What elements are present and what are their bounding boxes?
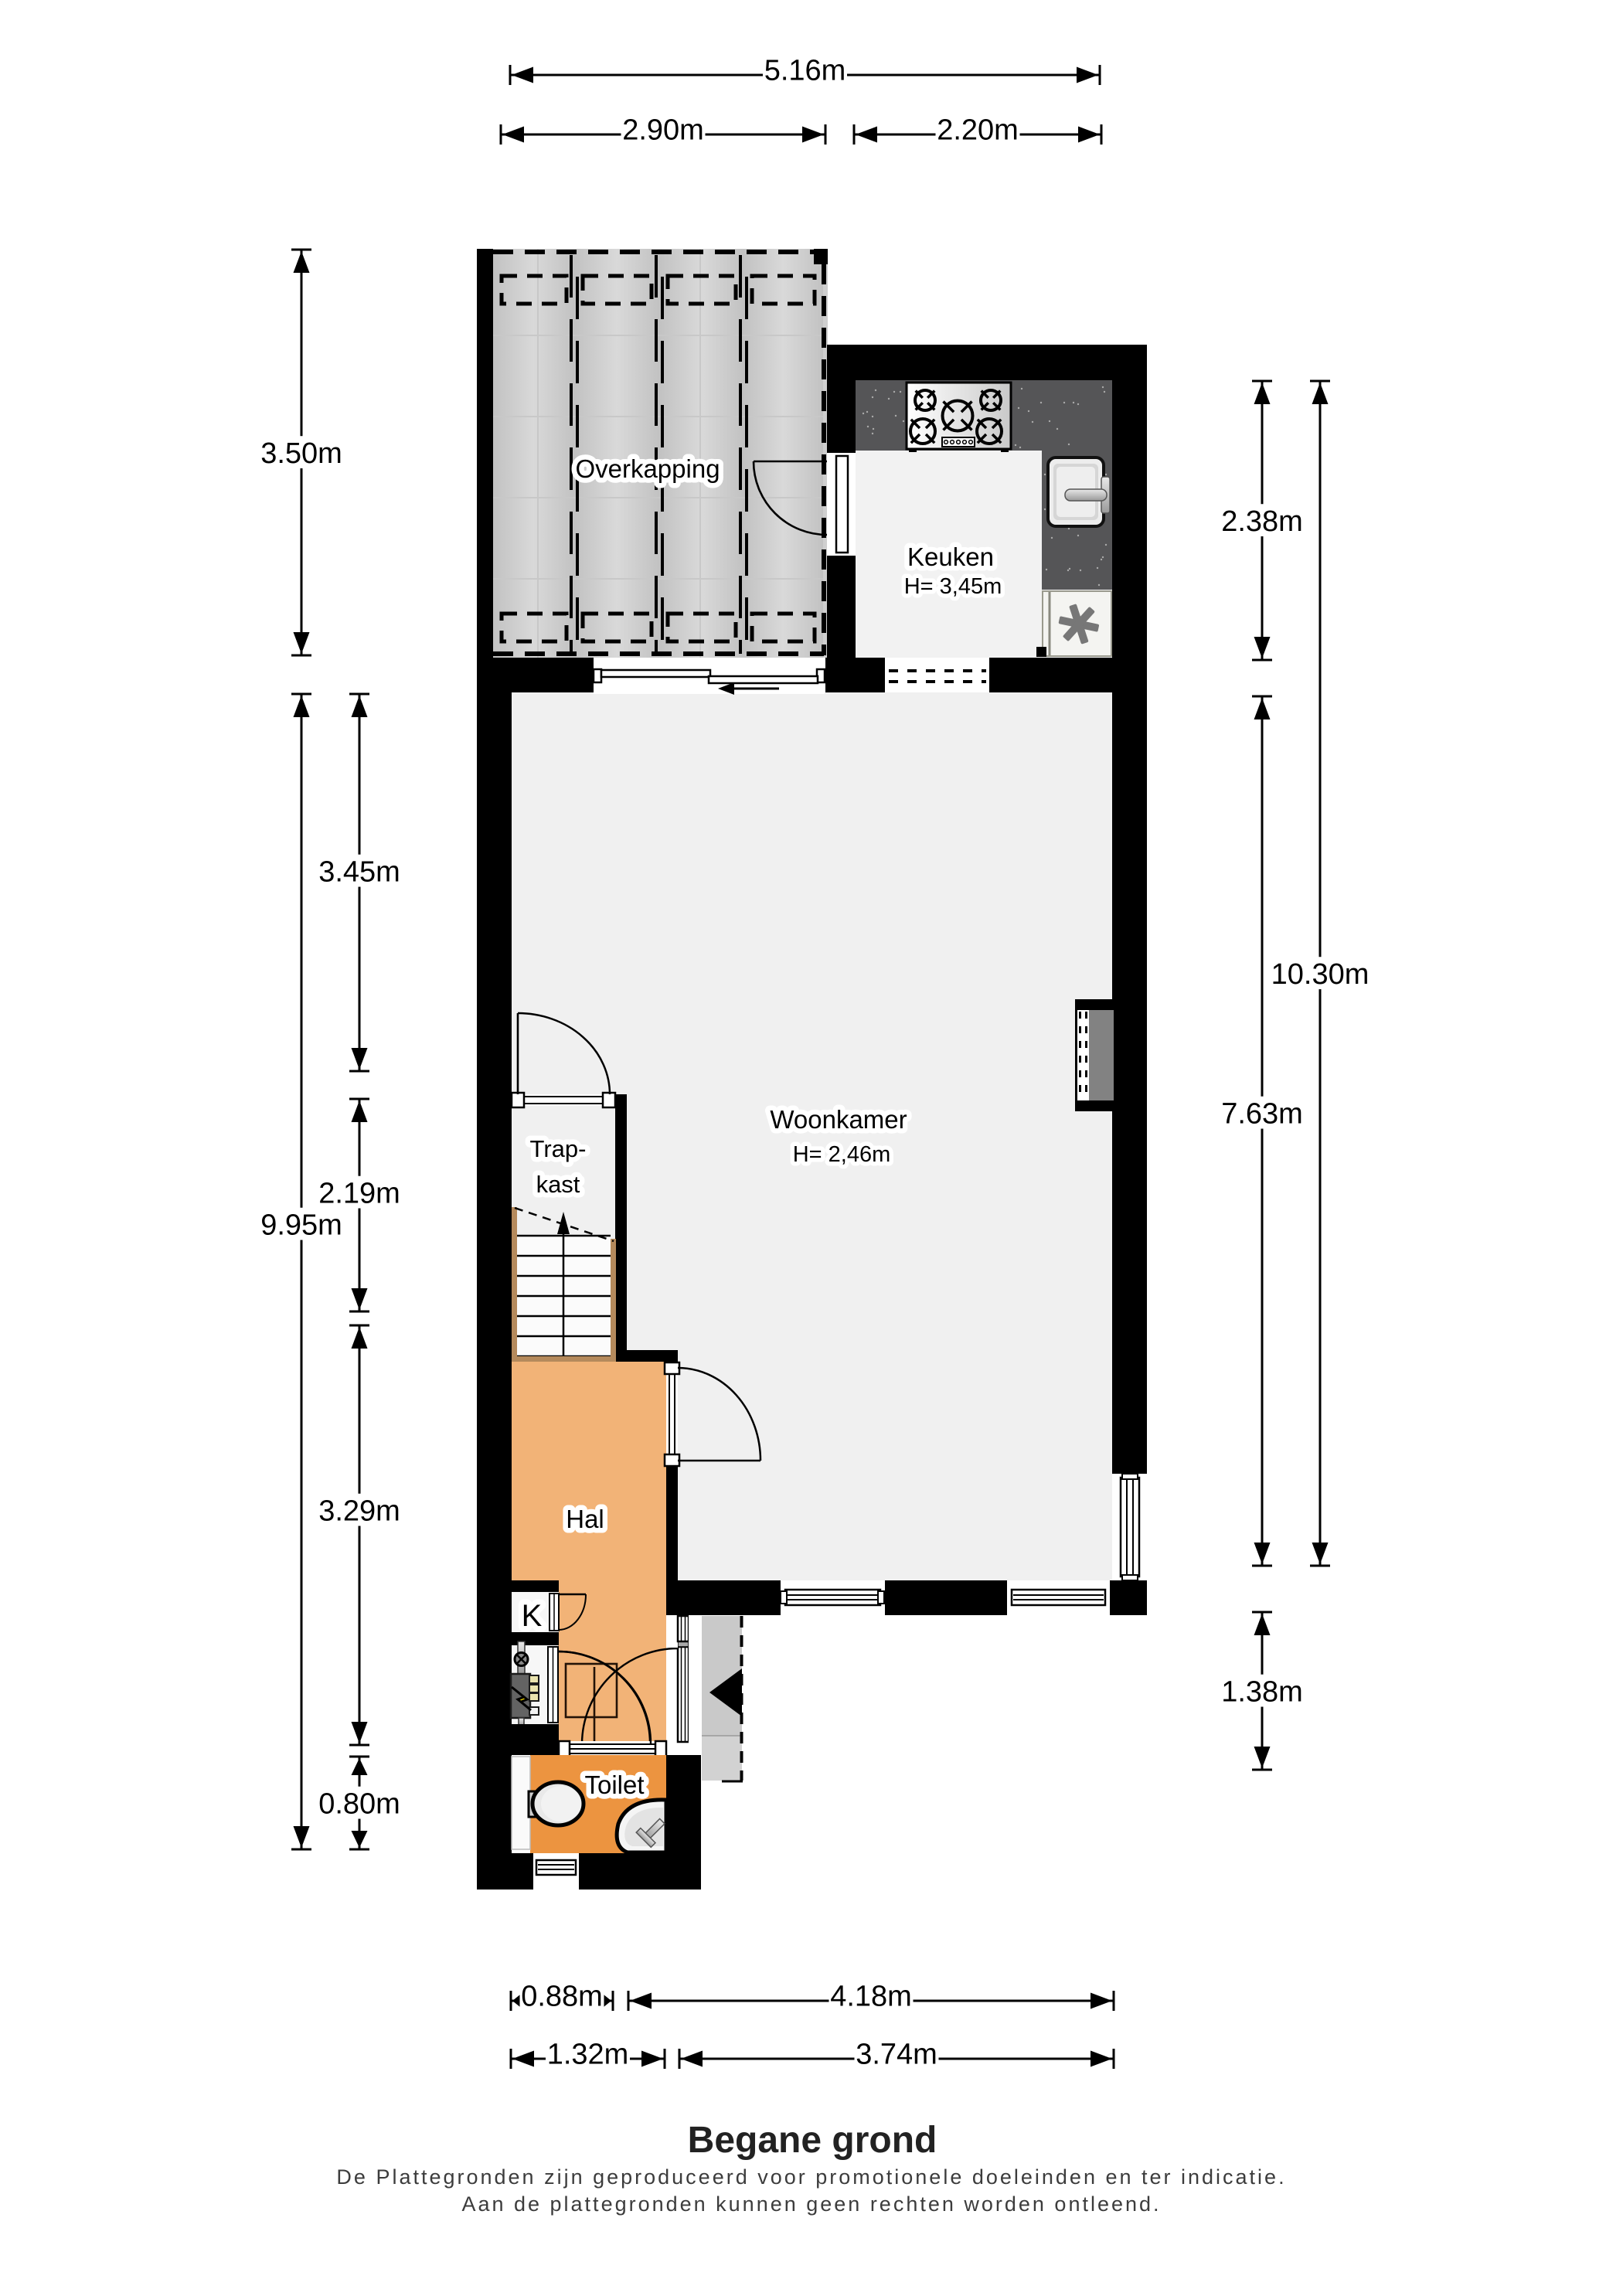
svg-text:2.90m: 2.90m <box>622 114 704 147</box>
svg-text:3.50m: 3.50m <box>260 437 342 470</box>
svg-text:4.18m: 4.18m <box>830 1981 912 2013</box>
svg-text:Woonkamer: Woonkamer <box>770 1105 907 1134</box>
svg-text:H= 2,46m: H= 2,46m <box>793 1142 891 1167</box>
svg-text:De Plattegronden zijn geproduc: De Plattegronden zijn geproduceerd voor … <box>336 2165 1286 2189</box>
svg-text:2.38m: 2.38m <box>1221 505 1303 538</box>
svg-text:3.29m: 3.29m <box>318 1495 400 1528</box>
svg-text:kast: kast <box>536 1171 580 1198</box>
svg-text:2.19m: 2.19m <box>318 1178 400 1210</box>
svg-text:7.63m: 7.63m <box>1221 1098 1303 1131</box>
svg-text:0.88m: 0.88m <box>521 1981 603 2013</box>
svg-text:2.20m: 2.20m <box>937 114 1019 147</box>
svg-text:Aan de plattegronden kunnen ge: Aan de plattegronden kunnen geen rechten… <box>461 2192 1161 2216</box>
svg-text:3.74m: 3.74m <box>856 2039 937 2071</box>
svg-text:9.95m: 9.95m <box>260 1209 342 1242</box>
svg-text:1.38m: 1.38m <box>1221 1676 1303 1709</box>
svg-text:5.16m: 5.16m <box>764 55 846 87</box>
svg-text:Trap-: Trap- <box>530 1135 587 1162</box>
svg-text:K: K <box>522 1599 543 1633</box>
svg-text:3.45m: 3.45m <box>318 856 400 889</box>
svg-text:0.80m: 0.80m <box>318 1788 400 1821</box>
svg-text:Keuken: Keuken <box>907 543 994 571</box>
svg-text:Overkapping: Overkapping <box>575 454 720 483</box>
svg-text:1.32m: 1.32m <box>547 2039 629 2071</box>
svg-text:10.30m: 10.30m <box>1271 958 1370 991</box>
svg-text:Hal: Hal <box>566 1505 604 1533</box>
svg-text:H= 3,45m: H= 3,45m <box>904 574 1002 599</box>
svg-text:Begane grond: Begane grond <box>688 2120 937 2161</box>
svg-text:Toilet: Toilet <box>584 1770 644 1799</box>
